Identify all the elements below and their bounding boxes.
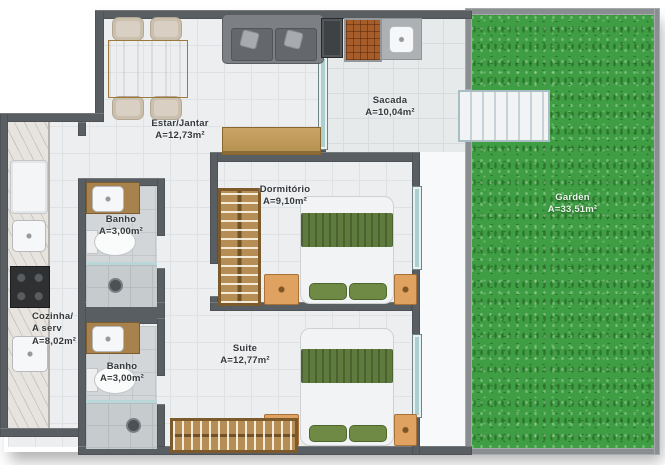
balcony-cabinet — [321, 18, 343, 58]
bath2-shower — [86, 400, 157, 449]
bed-pillow — [309, 283, 347, 300]
side-walkway — [420, 152, 465, 448]
floor-plan: Estar/Jantar A=12,73m² Sacada A=10,04m² … — [0, 0, 665, 465]
room-name: Banho — [86, 361, 158, 373]
label-banho2: Banho A=3,00m² — [86, 361, 158, 386]
bed-dormitorio — [300, 196, 394, 304]
garden-stairs — [458, 90, 550, 142]
label-dormitorio: Dormitório A=9,10m² — [215, 184, 355, 209]
nightstand — [394, 414, 417, 446]
wall-banho1-right-a — [157, 178, 165, 236]
wall-left-top-vert — [95, 10, 104, 122]
room-area: A=3,00m² — [86, 373, 158, 385]
garden-grass — [468, 12, 656, 450]
room-name: A serv — [32, 323, 102, 335]
bath2-shower-head — [126, 418, 141, 433]
bed-pillow — [309, 425, 347, 442]
label-banho1: Banho A=3,00m² — [85, 214, 157, 239]
room-area: A=3,00m² — [85, 226, 157, 238]
garden-wall-top — [465, 8, 660, 15]
nightstand — [264, 274, 299, 305]
wall-banho2-right-b — [157, 404, 165, 447]
dining-chair — [112, 96, 144, 120]
label-sacada: Sacada A=10,04m² — [330, 95, 450, 120]
wall-banho2-right-a — [157, 318, 165, 376]
room-area: A=33,51m² — [505, 204, 640, 216]
room-area: A=12,77m² — [175, 355, 315, 367]
dining-chair — [150, 96, 182, 120]
kitchen-sink — [12, 220, 46, 252]
room-name: Estar/Jantar — [110, 118, 250, 130]
window-suite — [412, 334, 422, 418]
room-area: A=10,04m² — [330, 107, 450, 119]
dining-chair — [112, 17, 144, 41]
dining-table — [108, 40, 188, 98]
bed-pillow — [349, 425, 387, 442]
room-name: Cozinha/ — [32, 311, 102, 323]
bath1-sink — [92, 186, 124, 212]
bed-pillow — [349, 283, 387, 300]
wall-left-outer — [0, 113, 8, 437]
room-area: A=8,02m² — [32, 336, 102, 348]
room-name: Suite — [175, 343, 315, 355]
bath1-shower-head — [108, 278, 123, 293]
wall-kitchen-right-a — [78, 122, 86, 136]
window-dormitorio — [412, 186, 422, 270]
room-name: Garden — [505, 192, 640, 204]
room-name: Sacada — [330, 95, 450, 107]
wall-kitchen-bottom — [0, 428, 86, 437]
dining-chair — [150, 17, 182, 41]
room-name: Dormitório — [215, 184, 355, 196]
barbecue-grill — [344, 18, 382, 62]
garden-wall-right — [654, 8, 660, 455]
room-name: Banho — [85, 214, 157, 226]
wardrobe-suite — [170, 418, 298, 453]
label-cozinha: Cozinha/ A serv A=8,02m² — [32, 311, 102, 348]
garden-wall-left-upper — [465, 8, 472, 90]
stove — [10, 266, 50, 308]
label-suite: Suite A=12,77m² — [175, 343, 315, 368]
label-garden: Garden A=33,51m² — [505, 192, 640, 217]
garden-wall-left-lower — [465, 138, 472, 448]
label-estar-jantar: Estar/Jantar A=12,73m² — [110, 118, 250, 143]
nightstand — [394, 274, 417, 305]
room-area: A=12,73m² — [110, 130, 250, 142]
sofa — [222, 14, 324, 64]
wall-kitchen-top — [0, 113, 104, 122]
bed-blanket — [301, 213, 393, 247]
garden-wall-bottom — [465, 448, 660, 455]
room-area: A=9,10m² — [215, 196, 355, 208]
exterior-cutout — [0, 0, 95, 113]
refrigerator — [10, 160, 48, 214]
balcony-sink — [389, 26, 414, 53]
